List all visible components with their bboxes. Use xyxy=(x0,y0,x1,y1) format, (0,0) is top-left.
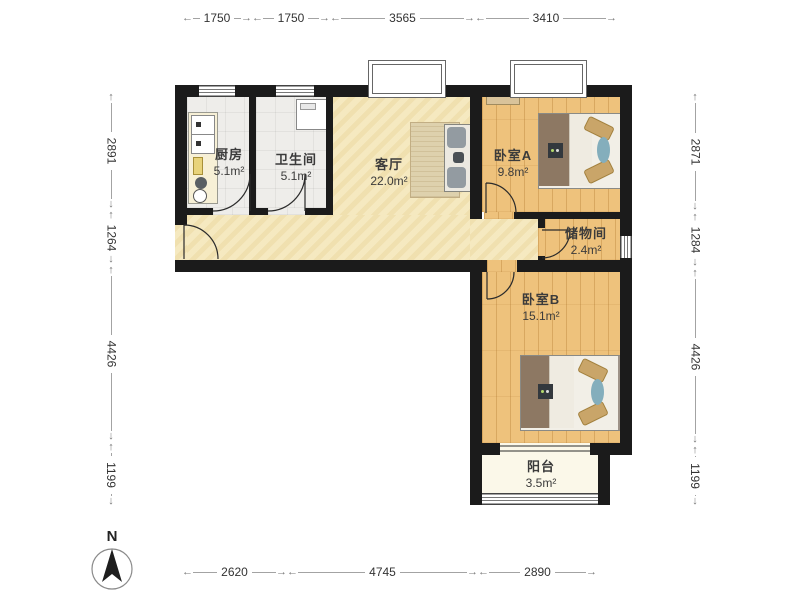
entry-door-gap xyxy=(175,225,187,260)
wall-bedroom-b-bottom-left xyxy=(482,443,500,455)
dimension-value: 2620 xyxy=(217,565,252,579)
wall-storage-left-upper xyxy=(538,212,545,228)
arrow-left-icon: ← xyxy=(478,567,489,578)
sofa-cushion-icon xyxy=(447,127,466,148)
arrow-up-icon: ↑ xyxy=(692,92,698,103)
accent-pillow-icon xyxy=(591,379,604,405)
dimension-bottom-3: ← 2890 → xyxy=(478,565,597,579)
dimension-right-4: ↑ 1199 ↓ xyxy=(684,445,706,507)
dimension-value: 4745 xyxy=(365,565,400,579)
dimension-right-1: ↑ 2871 ↓ xyxy=(684,92,706,212)
balcony-window xyxy=(482,493,598,505)
bedroom-b-area: 15.1m² xyxy=(504,309,578,325)
arrow-down-icon: ↓ xyxy=(692,496,698,507)
dimension-value: 1199 xyxy=(688,463,702,489)
arrow-right-icon: → xyxy=(464,13,475,24)
wall-hall-bottom xyxy=(175,260,482,272)
room-label-bedroom-a: 卧室A 9.8m² xyxy=(478,148,548,180)
tray-icon xyxy=(548,143,563,158)
bathroom-door-gap xyxy=(268,208,305,215)
arrow-up-icon: ↑ xyxy=(692,268,698,279)
storage-name: 储物间 xyxy=(548,226,624,243)
arrow-right-icon: → xyxy=(241,13,252,24)
arrow-right-icon: → xyxy=(606,13,617,24)
room-label-living: 客厅 22.0m² xyxy=(346,157,432,189)
room-label-balcony: 阳台 3.5m² xyxy=(504,459,578,491)
bathroom-area: 5.1m² xyxy=(258,169,334,185)
compass-north-label: N xyxy=(88,528,136,545)
dimension-value: 1750 xyxy=(200,11,235,25)
dimension-value: 2890 xyxy=(520,565,555,579)
dimension-top-1: ← 1750 → xyxy=(182,11,252,25)
arrow-down-icon: ↓ xyxy=(108,496,114,507)
wall-balcony-right xyxy=(598,455,610,505)
dimension-right-2: ↑ 1284 ↓ xyxy=(684,212,706,268)
wall-bedroom-b-left xyxy=(470,272,482,505)
wall-bedroom-b-bottom-right xyxy=(590,443,632,455)
north-arrow-icon xyxy=(89,546,135,592)
wall-left-upper xyxy=(175,97,187,225)
bed-icon-bedroom-b xyxy=(520,355,622,431)
dimension-value: 4426 xyxy=(688,343,702,370)
dimension-top-3: ← 3565 → xyxy=(330,11,475,25)
arrow-left-icon: ← xyxy=(330,13,341,24)
arrow-right-icon: → xyxy=(276,567,287,578)
pillow-icon xyxy=(577,358,609,384)
arrow-left-icon: ← xyxy=(287,567,298,578)
compass: N xyxy=(88,528,136,597)
accent-pillow-icon xyxy=(597,137,610,163)
kitchen-window xyxy=(199,85,235,97)
bathroom-window xyxy=(276,85,314,97)
dimension-left-2: ↑ 1264 ↓ xyxy=(100,210,122,265)
dimension-left-3: ↑ 4426 ↓ xyxy=(100,265,122,442)
arrow-right-icon: → xyxy=(319,13,330,24)
arrow-up-icon: ↑ xyxy=(692,445,698,456)
room-label-bedroom-b: 卧室B 15.1m² xyxy=(504,292,578,324)
dimension-bottom-1: ← 2620 → xyxy=(182,565,287,579)
floor-plan: 厨房 5.1m² 卫生间 5.1m² 客厅 22.0m² 卧室A 9.8m² 储… xyxy=(0,0,800,600)
hallway-floor xyxy=(187,215,470,260)
balcony-area: 3.5m² xyxy=(504,476,578,492)
dimension-value: 2871 xyxy=(688,139,702,166)
storage-area: 2.4m² xyxy=(548,243,624,259)
washing-machine-icon xyxy=(296,99,328,130)
kitchen-door-gap xyxy=(213,208,250,215)
pillow-icon xyxy=(577,401,609,427)
sofa-pillow-icon xyxy=(453,152,464,163)
tray-icon xyxy=(538,384,553,399)
living-area: 22.0m² xyxy=(346,174,432,190)
dimension-left-4: ↑ 1199 ↓ xyxy=(100,442,122,507)
wall-bathroom-bottom xyxy=(305,208,333,215)
arrow-up-icon: ↑ xyxy=(108,92,114,103)
wall-bedroom-b-top-left xyxy=(482,260,487,272)
bedroom-a-door-gap xyxy=(484,212,514,219)
hallway-floor-east xyxy=(470,219,538,260)
dimension-top-2: ← 1750 → xyxy=(252,11,330,25)
wall-bedroom-a-bottom xyxy=(514,212,620,219)
pan-icon xyxy=(193,189,207,203)
bed-icon-bedroom-a xyxy=(538,113,627,189)
dimension-value: 1284 xyxy=(688,227,702,254)
wall-right xyxy=(620,85,632,455)
room-label-bathroom: 卫生间 5.1m² xyxy=(258,152,334,184)
balcony-name: 阳台 xyxy=(504,459,578,476)
dimension-value: 1750 xyxy=(274,11,309,25)
bedroom-a-name: 卧室A xyxy=(478,148,548,165)
bedroom-a-area: 9.8m² xyxy=(478,165,548,181)
arrow-left-icon: ← xyxy=(475,13,486,24)
arrow-left-icon: ← xyxy=(182,567,193,578)
storage-door-gap xyxy=(538,228,545,258)
balcony-door-gap xyxy=(500,443,590,455)
arrow-up-icon: ↑ xyxy=(692,212,698,223)
kitchen-name: 厨房 xyxy=(198,147,260,164)
bedroom-b-door-gap xyxy=(487,260,517,272)
arrow-right-icon: → xyxy=(586,567,597,578)
room-label-kitchen: 厨房 5.1m² xyxy=(198,147,260,179)
dimension-value: 3565 xyxy=(385,11,420,25)
arrow-left-icon: ← xyxy=(252,13,263,24)
arrow-left-icon: ← xyxy=(182,13,193,24)
dimension-left-1: ↑ 2891 ↓ xyxy=(100,92,122,210)
dimension-value: 1264 xyxy=(104,224,118,251)
dimension-value: 4426 xyxy=(104,340,118,367)
arrow-right-icon: → xyxy=(467,567,478,578)
arrow-up-icon: ↑ xyxy=(108,210,114,221)
bedroom-a-bay-window xyxy=(510,60,587,98)
living-name: 客厅 xyxy=(346,157,432,174)
sofa-cushion-icon xyxy=(447,167,466,188)
dimension-value: 1199 xyxy=(104,462,118,488)
arrow-up-icon: ↑ xyxy=(108,442,114,453)
bathroom-name: 卫生间 xyxy=(258,152,334,169)
room-label-storage: 储物间 2.4m² xyxy=(548,226,624,258)
stove-icon xyxy=(191,115,215,135)
dimension-value: 3410 xyxy=(529,11,564,25)
dimension-right-3: ↑ 4426 ↓ xyxy=(684,268,706,445)
dimension-top-4: ← 3410 → xyxy=(475,11,617,25)
kitchen-area: 5.1m² xyxy=(198,164,260,180)
wall-bedroom-b-top xyxy=(517,260,620,272)
wall-kitchen-bathroom-bottom xyxy=(250,208,268,215)
arrow-up-icon: ↑ xyxy=(108,265,114,276)
dimension-bottom-2: ← 4745 → xyxy=(287,565,478,579)
living-room-bay-window xyxy=(368,60,446,98)
wall-kitchen-bottom xyxy=(187,208,213,215)
dimension-value: 2891 xyxy=(104,138,118,165)
bedroom-b-name: 卧室B xyxy=(504,292,578,309)
